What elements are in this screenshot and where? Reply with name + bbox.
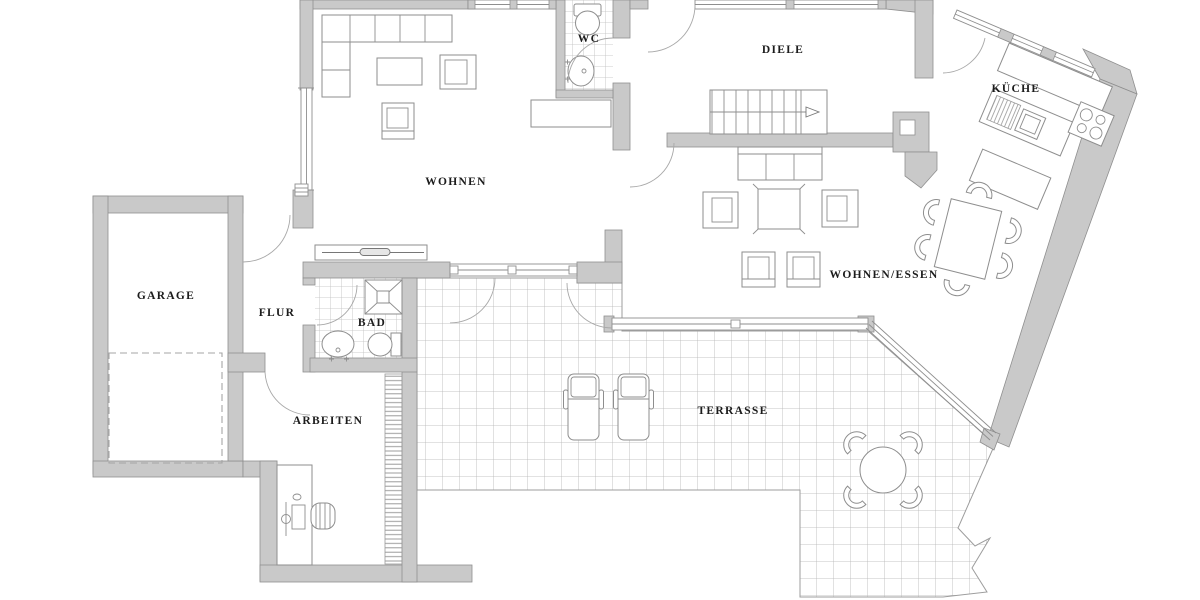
entrance-door-icon <box>243 215 290 262</box>
arbeiten-door-icon <box>265 372 310 415</box>
stair-icon <box>710 90 827 134</box>
washbasin-icon <box>322 331 354 357</box>
essen-door-icon <box>630 143 674 187</box>
room-label-flur: FLUR <box>259 307 296 319</box>
floor-plan-page: WOHNEN WC DIELE KÜCHE WOHNEN/ESSEN GARAG… <box>0 0 1200 600</box>
garage-content <box>109 353 222 463</box>
diele-door-icon <box>648 5 695 52</box>
room-label-garage: GARAGE <box>137 290 195 302</box>
hifi-icon <box>360 249 390 256</box>
shelf-icon <box>385 374 402 564</box>
round-table-icon <box>860 447 906 493</box>
arbeiten-furniture <box>277 374 402 565</box>
room-label-wohnen: WOHNEN <box>425 176 486 188</box>
coffee-table-icon <box>377 58 422 85</box>
floor-plan-svg: WOHNEN WC DIELE KÜCHE WOHNEN/ESSEN GARAG… <box>0 0 1200 600</box>
room-label-wohnen-essen: WOHNEN/ESSEN <box>830 269 939 281</box>
room-label-wc: WC <box>578 33 600 45</box>
armchair-icon <box>703 192 738 228</box>
dining-table-icon <box>934 199 1001 280</box>
room-label-arbeiten: ARBEITEN <box>293 415 363 427</box>
desk-icon <box>277 465 312 565</box>
car-space-icon <box>109 353 222 463</box>
sun-lounger-icon <box>614 374 654 440</box>
room-label-kueche: KÜCHE <box>992 81 1041 95</box>
sideboard-icon <box>531 100 611 127</box>
room-label-terrasse: TERRASSE <box>697 405 768 417</box>
room-label-bad: BAD <box>358 317 386 329</box>
room-label-diele: DIELE <box>762 44 804 56</box>
office-chair-icon <box>311 503 335 529</box>
sun-lounger-icon <box>564 374 604 440</box>
kitchen-island-icon <box>969 149 1050 209</box>
kueche-door-icon <box>943 38 985 73</box>
sofa-icon <box>738 147 822 180</box>
washbasin-icon <box>568 56 594 86</box>
